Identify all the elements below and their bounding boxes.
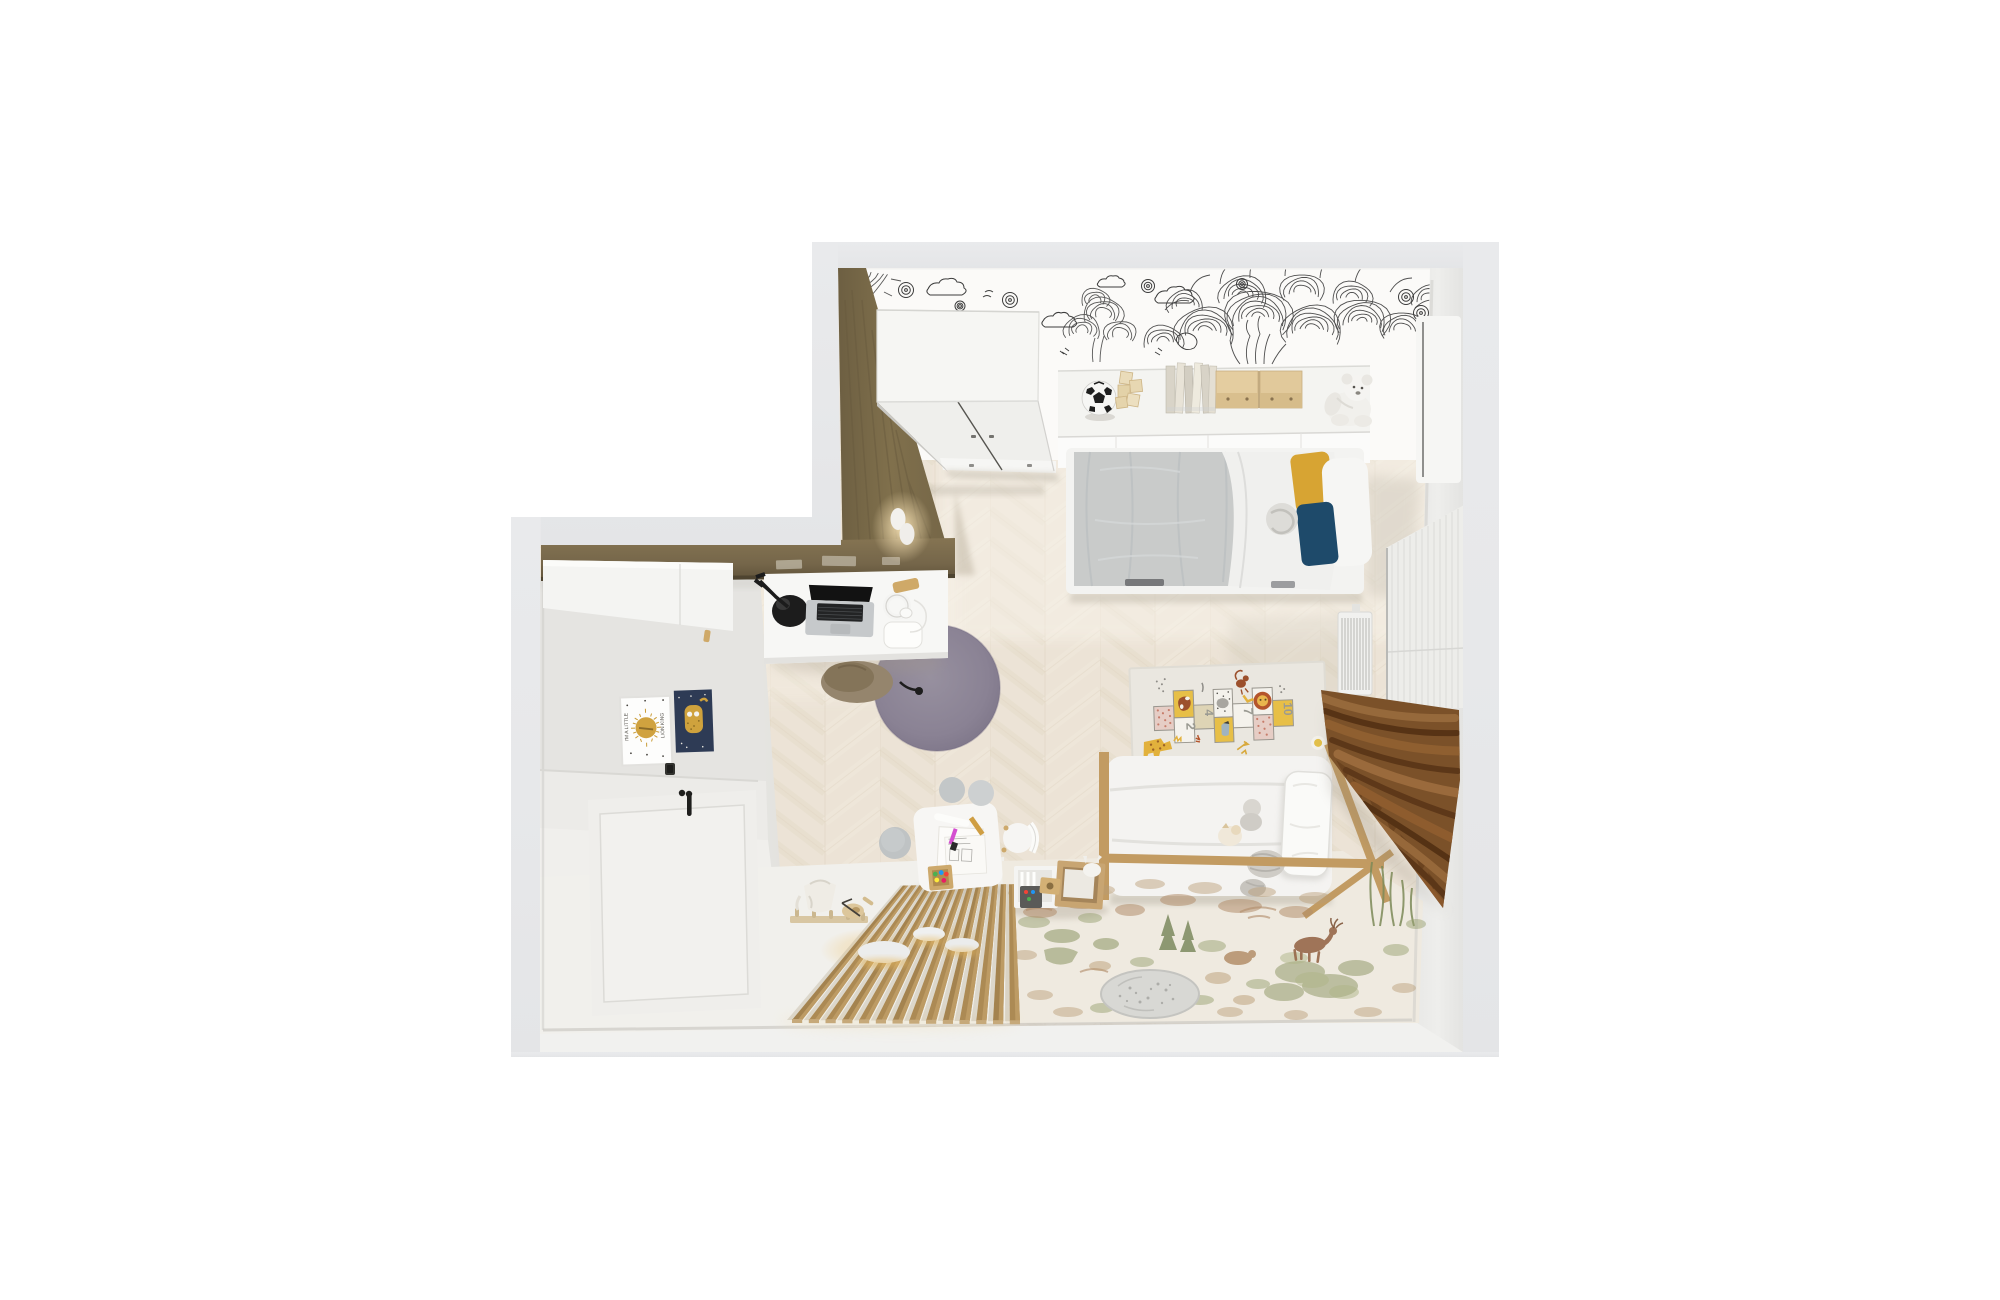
svg-text:7: 7 — [1241, 707, 1256, 715]
svg-text:2: 2 — [1183, 722, 1198, 730]
svg-text:I'M A LITTLE: I'M A LITTLE — [623, 712, 630, 741]
svg-text:10: 10 — [1281, 702, 1295, 716]
svg-text:4: 4 — [1202, 709, 1216, 716]
svg-text:LION KING: LION KING — [660, 713, 667, 739]
